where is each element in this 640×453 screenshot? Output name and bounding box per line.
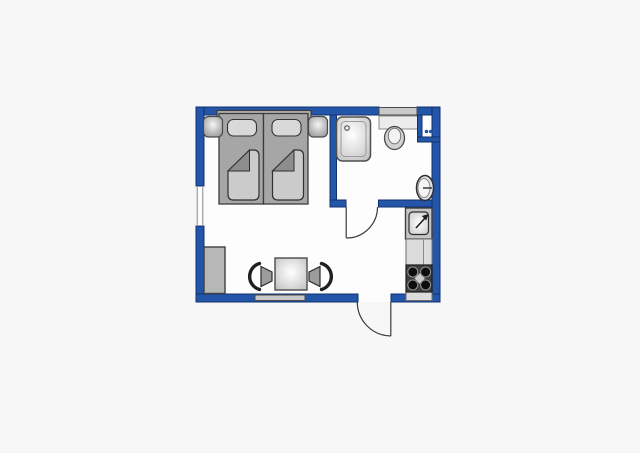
wall-left-upper xyxy=(196,107,204,186)
counter-bottom xyxy=(406,292,432,301)
bathroom-wall-vertical xyxy=(330,115,337,207)
window-bottom xyxy=(255,295,305,301)
toilet-bowl-inner xyxy=(388,128,400,144)
floor-plan xyxy=(0,0,640,453)
niche-dot-2 xyxy=(429,130,433,134)
nightstand-left xyxy=(204,117,223,138)
wall-left-lower xyxy=(196,226,204,302)
dining-table xyxy=(275,258,307,290)
pillow-left xyxy=(228,120,257,137)
bathroom-wall-left-stub xyxy=(330,200,346,207)
kitchen-sink-unit xyxy=(406,208,433,239)
window-top xyxy=(379,108,417,116)
wardrobe xyxy=(204,247,225,294)
entry-door-swing xyxy=(357,302,391,336)
shower xyxy=(337,117,371,161)
stove-4-burners xyxy=(406,265,432,292)
counter-top xyxy=(406,239,432,265)
burner-top-right xyxy=(421,267,431,277)
window-left-inner-line xyxy=(202,186,203,226)
niche-dot-1 xyxy=(425,130,429,134)
nightstand-right xyxy=(309,117,328,138)
window-left-outer-line xyxy=(197,186,198,226)
burner-top-left xyxy=(408,267,418,277)
pillow-right xyxy=(272,120,301,137)
shower-drain xyxy=(345,126,350,131)
burner-bottom-left xyxy=(408,280,418,290)
entry-door xyxy=(357,302,391,336)
toilet xyxy=(385,127,405,150)
niche-bottom-bar xyxy=(418,137,441,142)
kitchenette xyxy=(406,208,433,301)
wall-right xyxy=(432,107,440,302)
washbasin xyxy=(417,176,434,201)
burner-bottom-right xyxy=(421,280,431,290)
